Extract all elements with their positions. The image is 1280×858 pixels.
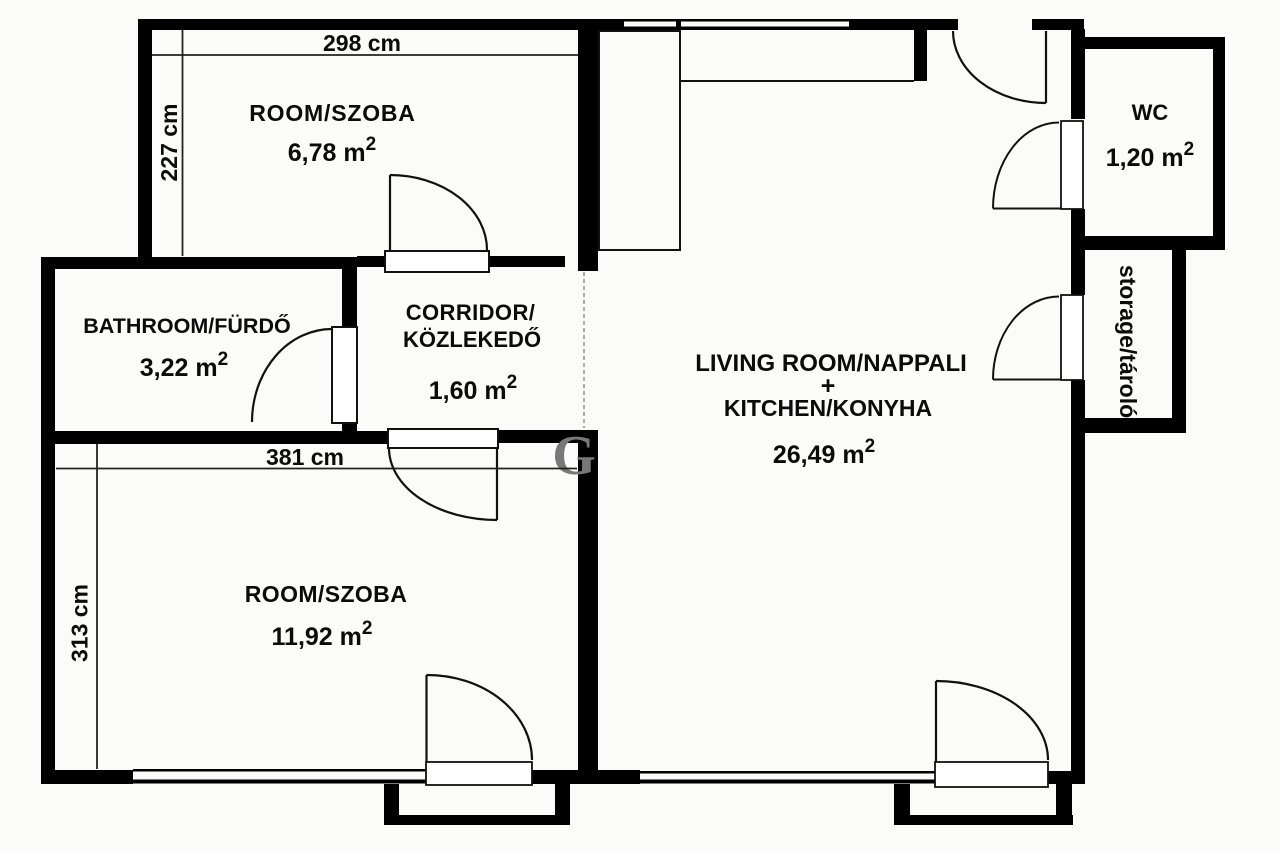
svg-text:227 cm: 227 cm	[156, 103, 182, 181]
svg-text:381 cm: 381 cm	[266, 444, 344, 470]
svg-text:WC: WC	[1132, 100, 1169, 125]
svg-text:CORRIDOR/: CORRIDOR/	[406, 300, 536, 325]
svg-text:BATHROOM/FÜRDŐ: BATHROOM/FÜRDŐ	[83, 313, 290, 338]
svg-text:storage/tároló: storage/tároló	[1115, 265, 1141, 418]
svg-text:26,49 m2: 26,49 m2	[773, 436, 875, 469]
svg-text:6,78 m2: 6,78 m2	[288, 134, 376, 167]
svg-text:ROOM/SZOBA: ROOM/SZOBA	[249, 100, 415, 126]
svg-text:313 cm: 313 cm	[67, 584, 93, 662]
svg-text:3,22 m2: 3,22 m2	[140, 349, 228, 382]
svg-text:298 cm: 298 cm	[323, 30, 401, 56]
svg-text:11,92 m2: 11,92 m2	[272, 618, 373, 651]
svg-text:1,60 m2: 1,60 m2	[429, 372, 517, 405]
svg-text:1,20 m2: 1,20 m2	[1106, 139, 1194, 172]
svg-text:ROOM/SZOBA: ROOM/SZOBA	[245, 581, 407, 607]
svg-text:G: G	[552, 425, 596, 487]
svg-text:KÖZLEKEDŐ: KÖZLEKEDŐ	[403, 327, 541, 352]
svg-text:KITCHEN/KONYHA: KITCHEN/KONYHA	[724, 395, 932, 421]
